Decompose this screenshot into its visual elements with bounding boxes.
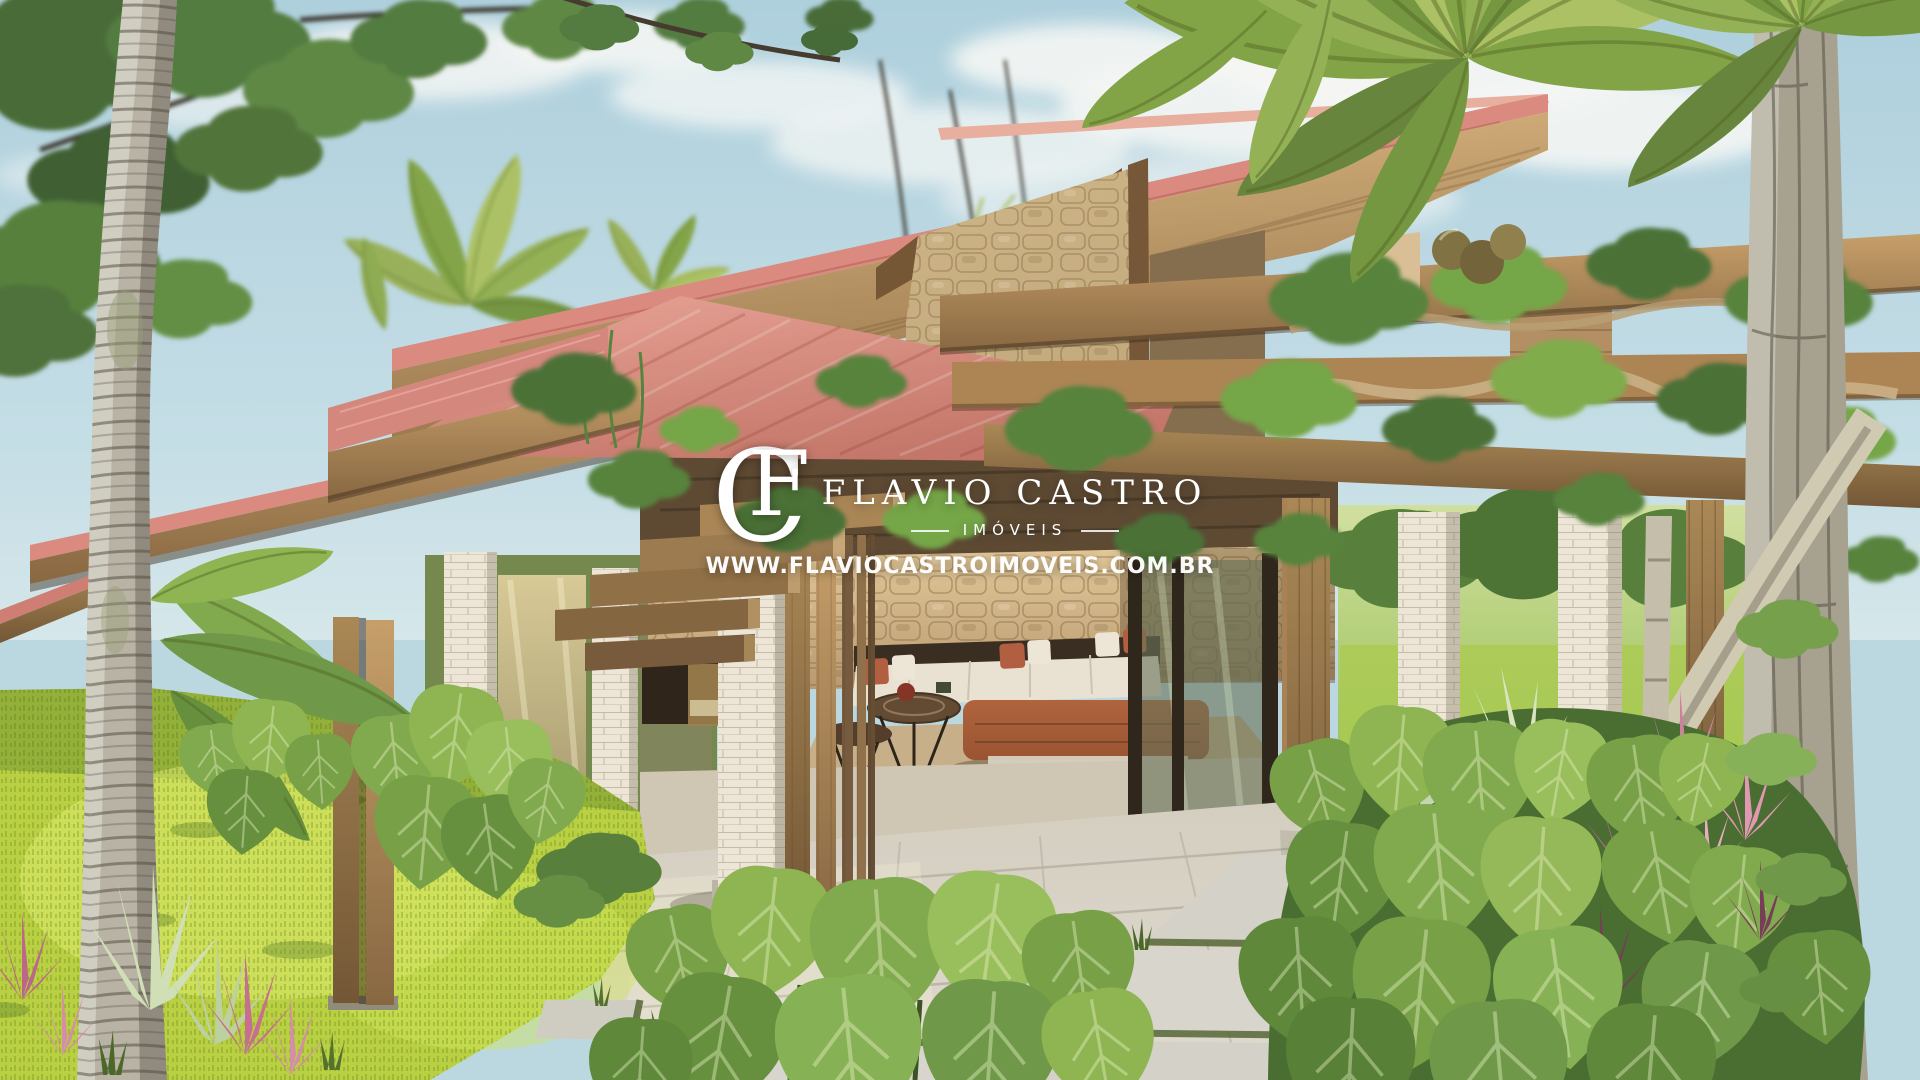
render-scene: [0, 0, 1920, 1080]
sunlight-haze: [0, 0, 1920, 1080]
architectural-render-photo: C F FLAVIO CASTRO IMÓVEIS WWW.FLAVIOCAST…: [0, 0, 1920, 1080]
